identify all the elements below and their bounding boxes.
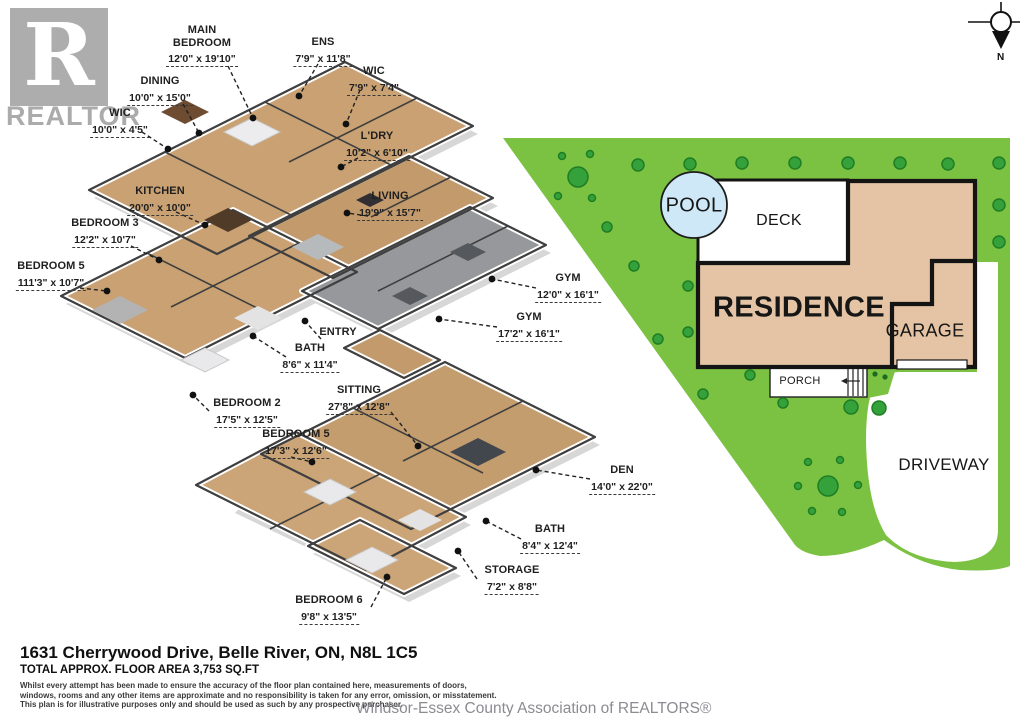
room-label-gym-1: GYM 12'0" x 16'1": [535, 272, 601, 303]
compass-icon: N: [968, 2, 1020, 63]
room-label-sitting: SITTING 27'8" x 12'8": [326, 384, 392, 415]
room-label-bedroom-2: BEDROOM 2 17'5" x 12'5": [213, 397, 281, 428]
room-label-bedroom-3: BEDROOM 3 12'2" x 10'7": [71, 217, 139, 248]
floor-area-text: TOTAL APPROX. FLOOR AREA 3,753 SQ.FT: [20, 664, 259, 676]
room-label-den: DEN 14'0" x 22'0": [589, 464, 655, 495]
room-label-dining: DINING 10'0" x 15'0": [127, 75, 193, 106]
room-label-wic-right: WIC 7'9" x 7'4": [347, 65, 401, 96]
association-watermark: Windsor-Essex County Association of REAL…: [356, 700, 711, 718]
site-label-pool: POOL: [666, 195, 723, 218]
room-label-bedroom-5-lower: BEDROOM 5 17'3" x 12'6": [262, 428, 330, 459]
room-label-laundry: L'DRY 10'2" x 6'10": [344, 130, 410, 161]
site-plan: [503, 138, 1010, 571]
room-label-living: LIVING 19'9" x 15'7": [357, 190, 423, 221]
room-label-bedroom-5-upper: BEDROOM 5 111'3" x 10'7": [16, 260, 86, 291]
room-label-storage: STORAGE 7'2" x 8'8": [485, 564, 540, 595]
site-label-deck: DECK: [756, 212, 802, 230]
room-label-bath-upper: BATH 8'6" x 11'4": [280, 342, 339, 373]
room-label-gym-2: GYM 17'2" x 16'1": [496, 311, 562, 342]
room-label-main-bedroom: MAIN BEDROOM 12'0" x 19'10": [160, 24, 244, 67]
room-label-entry: ENTRY: [319, 326, 356, 339]
garage-door: [897, 360, 967, 369]
site-label-residence: RESIDENCE: [713, 292, 885, 325]
room-label-kitchen: KITCHEN 20'0" x 10'0": [127, 185, 193, 216]
room-label-wic-left: WIC 10'0" x 4'5": [90, 107, 150, 138]
plan-drawing: N: [0, 0, 1024, 723]
room-label-bath-lower: BATH 8'4" x 12'4": [520, 523, 580, 554]
site-label-driveway: DRIVEWAY: [898, 455, 989, 475]
address-title: 1631 Cherrywood Drive, Belle River, ON, …: [20, 643, 417, 663]
floor-plan-image: R REALTOR: [0, 0, 1024, 723]
room-label-ens: ENS 7'9" x 11'8": [293, 36, 352, 67]
site-label-porch: PORCH: [779, 375, 820, 387]
room-label-bedroom-6: BEDROOM 6 9'8" x 13'5": [295, 594, 363, 625]
compass-north-label: N: [997, 52, 1004, 63]
site-label-garage: GARAGE: [886, 321, 965, 342]
